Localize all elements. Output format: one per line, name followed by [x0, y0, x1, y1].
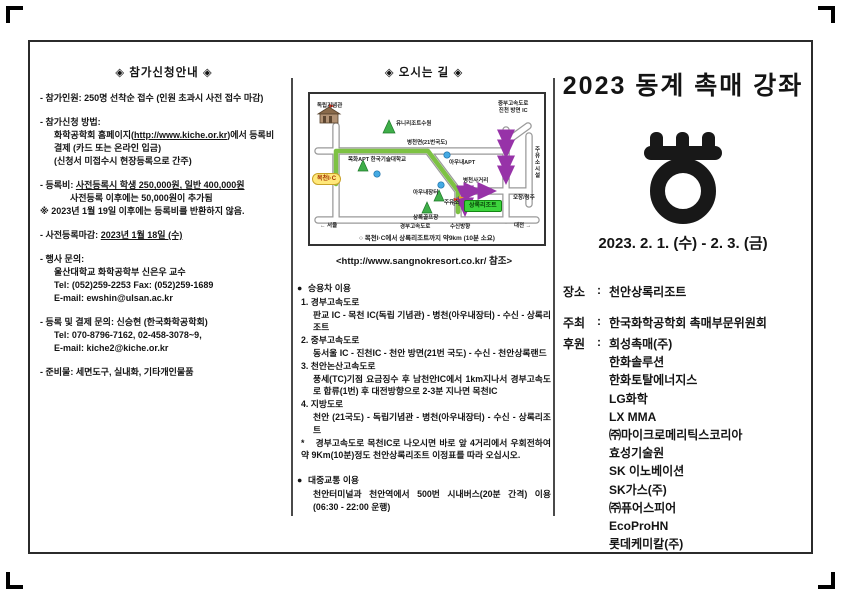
info-line: - 행사 문의:	[40, 253, 288, 266]
info-line: 사전등록 이후에는 50,000원이 추가됨	[70, 192, 288, 205]
text: (신청서 미접수시 현장등록으로 간주)	[54, 156, 192, 166]
info-line: - 준비물: 세면도구, 실내화, 기타개인물품	[40, 366, 288, 379]
bullet-icon: ●	[297, 474, 308, 487]
column-divider-left	[291, 78, 293, 516]
logo-ring	[650, 158, 716, 224]
text: - 참가인원: 250명 선착순 접수 (인원 초과시 사전 접수 마감)	[40, 93, 263, 103]
text: Tel: (052)259-2253 Fax: (052)259-1689	[54, 280, 213, 290]
sangnok-resort-badge: 상록리조트	[464, 200, 502, 212]
text: - 등록비:	[40, 180, 76, 190]
info-paragraph: - 등록 및 결제 문의: 신승현 (한국화학공학회)Tel: 070-8796…	[40, 316, 288, 355]
sponsor-item: ㈜퓨어스피어	[609, 499, 742, 517]
corner-mark-top-left	[6, 6, 23, 23]
sponsor-list: 희성촉매(주)한화솔루션한화토탈에너지스LG화학LX MMA㈜마이크로메리틱스코…	[609, 335, 742, 553]
map-place-label: 주유소시설	[533, 146, 540, 179]
transit-directions: ●대중교통 이용 천안터미널과 천안역에서 500번 시내버스(20분 간격) …	[297, 474, 551, 513]
resort-website-link: <http://www.sangnokresort.co.kr/ 참조>	[297, 253, 551, 267]
sponsor-item: SK 이노베이션	[609, 462, 742, 480]
corner-mark-bottom-left	[6, 572, 23, 589]
colon: :	[597, 283, 609, 300]
sponsor-item: LG화학	[609, 390, 742, 408]
map-place-label: 병천면(21번국도)	[407, 140, 447, 147]
text: ※ 2023년 1월 19일 이후에는 등록비를 반환하지 않음.	[40, 206, 245, 216]
text: - 행사 문의:	[40, 254, 84, 264]
route-list: 1. 경부고속도로판교 IC - 목천 IC(독립 기념관) - 병천(아우내장…	[297, 296, 551, 437]
route-name: 3. 천안논산고속도로	[301, 360, 551, 373]
route-item: 2. 중부고속도로동서울 IC - 진천IC - 천안 방면(21번 국도) -…	[297, 334, 551, 360]
text: 화학공학회 홈페이지(	[54, 130, 134, 140]
info-line: 울산대학교 화학공학부 신은우 교수	[54, 266, 288, 279]
text: - 사전등록마감:	[40, 230, 101, 240]
emphasized-text: 사전등록시 학생 250,000원, 일반 400,000원	[76, 180, 245, 190]
route-name: 2. 중부고속도로	[301, 334, 551, 347]
route-description: 천안 (21국도) - 독립기념관 - 병천(아우내장터) - 수신 - 상록리…	[313, 411, 551, 437]
sponsor-item: 롯데케미칼(주)	[609, 535, 742, 553]
registration-column: ◈ 참가신청안내 ◈ - 참가인원: 250명 선착순 접수 (인원 초과시 사…	[40, 42, 288, 390]
route-map: 독립기념관유니리조트수원병천면(21번국도)중부고속도로 진천 방면 IC주유소…	[308, 92, 546, 246]
sponsor-label: 후원	[563, 335, 597, 553]
info-line: - 등록비: 사전등록시 학생 250,000원, 일반 400,000원	[40, 179, 288, 192]
transit-heading-label: 대중교통 이용	[308, 475, 359, 485]
map-place-label: 경부고속도로	[400, 224, 430, 231]
info-line: - 참가신청 방법:	[40, 116, 288, 129]
catalysis-society-logo-icon	[644, 132, 722, 224]
sponsor-item: LX MMA	[609, 408, 742, 426]
map-place-label: 유니리조트수원	[396, 121, 431, 128]
emphasized-text: 2023년 1월 18일 (수)	[101, 230, 183, 240]
info-paragraph: - 사전등록마감: 2023년 1월 18일 (수)	[40, 229, 288, 242]
asterisk-mark: *	[301, 438, 304, 448]
map-place-label: 수신방향	[450, 224, 470, 231]
directions-column: ◈ 오시는 길 ◈	[297, 42, 551, 514]
map-caption: ○ 목천I·C에서 상록리조트까지 약9km (10분 소요)	[310, 232, 544, 242]
corner-mark-top-right	[818, 6, 835, 23]
exit-note: * 경부고속도로 목천IC로 나오시면 바로 앞 4거리에서 우회전하여 약 9…	[301, 437, 551, 463]
directions-title: ◈ 오시는 길 ◈	[297, 64, 551, 80]
map-place-label: 주유소	[444, 200, 459, 207]
sponsor-item: 효성기술원	[609, 444, 742, 462]
info-line: (신청서 미접수시 현장등록으로 간주)	[54, 155, 288, 168]
text: Tel: 070-8796-7162, 02-458-3078~9,	[54, 330, 202, 340]
text: 사전등록 이후에는 50,000원이 추가됨	[70, 193, 213, 203]
map-place-label: 병천사거리	[463, 178, 488, 185]
info-line: - 사전등록마감: 2023년 1월 18일 (수)	[40, 229, 288, 242]
corner-mark-bottom-right	[818, 572, 835, 589]
colon: :	[597, 335, 609, 553]
transit-heading: ●대중교통 이용	[297, 474, 551, 487]
registration-paragraphs: - 참가인원: 250명 선착순 접수 (인원 초과시 사전 접수 마감)- 참…	[40, 92, 288, 379]
info-paragraph: - 준비물: 세면도구, 실내화, 기타개인물품	[40, 366, 288, 379]
flyer-sheet: ◈ 참가신청안내 ◈ - 참가인원: 250명 선착순 접수 (인원 초과시 사…	[28, 40, 813, 554]
exit-note-text: 경부고속도로 목천IC로 나오시면 바로 앞 4거리에서 우회전하여 약 9Km…	[301, 438, 551, 461]
column-divider-right	[553, 78, 555, 516]
map-place-label: 아우내APT	[449, 160, 475, 167]
text: E-mail: kiche2@kiche.or.kr	[54, 343, 168, 353]
text: - 등록 및 결제 문의: 신승현 (한국화학공학회)	[40, 317, 208, 327]
text: 결제 (카드 또는 온라인 입금)	[54, 143, 161, 153]
colon: :	[597, 314, 609, 331]
host-value: 한국화학공학회 촉매부문위원회	[609, 314, 767, 331]
sponsor-item: EcoProHN	[609, 517, 742, 535]
event-title: 2023 동계 촉매 강좌	[557, 66, 809, 102]
info-line: E-mail: ewshin@ulsan.ac.kr	[54, 292, 288, 305]
map-place-label: 아우내장터	[413, 190, 438, 197]
event-column: 2023 동계 촉매 강좌 2023. 2. 1. (수) - 2. 3. (금…	[557, 42, 809, 553]
map-place-label: 오창/청주	[513, 195, 535, 202]
car-directions: ●승용차 이용 1. 경부고속도로판교 IC - 목천 IC(독립 기념관) -…	[297, 282, 551, 462]
sponsor-item: 희성촉매(주)	[609, 335, 742, 353]
map-place-label: 독립기념관	[317, 103, 342, 110]
info-paragraph: - 등록비: 사전등록시 학생 250,000원, 일반 400,000원사전등…	[40, 179, 288, 218]
registration-title: ◈ 참가신청안내 ◈	[40, 64, 288, 80]
map-place-label: 상록골프장	[413, 215, 438, 222]
route-item: 3. 천안논산고속도로풍세(TC)기점 요금징수 후 남천안IC에서 1km지나…	[297, 360, 551, 398]
car-heading-label: 승용차 이용	[308, 283, 351, 293]
host-label: 주최	[563, 314, 597, 331]
sponsor-item: SK가스(주)	[609, 481, 742, 499]
info-line: - 참가인원: 250명 선착순 접수 (인원 초과시 사전 접수 마감)	[40, 92, 288, 105]
tree-icons	[358, 120, 444, 213]
map-place-label: 중부고속도로 진천 방면 IC	[498, 101, 528, 114]
info-paragraph: - 행사 문의:울산대학교 화학공학부 신은우 교수Tel: (052)259-…	[40, 253, 288, 305]
info-paragraph: - 참가신청 방법:화학공학회 홈페이지(http://www.kiche.or…	[40, 116, 288, 168]
emphasized-text: http://www.kiche.or.kr	[134, 130, 227, 140]
text: )에서 등록비	[227, 130, 274, 140]
info-line: ※ 2023년 1월 19일 이후에는 등록비를 반환하지 않음.	[40, 205, 288, 218]
route-description: 동서울 IC - 진천IC - 천안 방면(21번 국도) - 수신 - 천안상…	[313, 347, 551, 360]
info-line: Tel: (052)259-2253 Fax: (052)259-1689	[54, 279, 288, 292]
sponsor-item: 한화토탈에너지스	[609, 371, 742, 389]
map-place-label: ← 서울	[320, 223, 337, 230]
bullet-icon: ●	[297, 282, 308, 295]
text: 울산대학교 화학공학부 신은우 교수	[54, 267, 186, 277]
sponsor-row: 후원 : 희성촉매(주)한화솔루션한화토탈에너지스LG화학LX MMA㈜마이크로…	[563, 335, 809, 553]
map-place-label: 대전 →	[514, 223, 531, 230]
text: - 준비물: 세면도구, 실내화, 기타개인물품	[40, 367, 193, 377]
info-paragraph: - 참가인원: 250명 선착순 접수 (인원 초과시 사전 접수 마감)	[40, 92, 288, 105]
info-line: E-mail: kiche2@kiche.or.kr	[54, 342, 288, 355]
sponsor-item: 한화솔루션	[609, 353, 742, 371]
route-description: 판교 IC - 목천 IC(독립 기념관) - 병천(아우내장터) - 수신 -…	[313, 309, 551, 335]
info-line: 화학공학회 홈페이지(http://www.kiche.or.kr)에서 등록비	[54, 129, 288, 142]
car-directions-heading: ●승용차 이용	[297, 282, 551, 295]
sponsor-item: ㈜마이크로메리틱스코리아	[609, 426, 742, 444]
venue-value: 천안상록리조트	[609, 283, 686, 300]
route-name: 1. 경부고속도로	[301, 296, 551, 309]
transit-body: 천안터미널과 천안역에서 500번 시내버스(20분 간격) 이용 (06:30…	[313, 488, 551, 514]
text: E-mail: ewshin@ulsan.ac.kr	[54, 293, 173, 303]
mokcheon-ic-badge: 목천I·C	[312, 173, 341, 185]
route-item: 4. 지방도로천안 (21국도) - 독립기념관 - 병천(아우내장터) - 수…	[297, 398, 551, 436]
venue-row: 장소 : 천안상록리조트	[563, 283, 809, 300]
info-line: 결제 (카드 또는 온라인 입금)	[54, 142, 288, 155]
host-row: 주최 : 한국화학공학회 촉매부문위원회	[563, 314, 809, 331]
route-name: 4. 지방도로	[301, 398, 551, 411]
map-place-label: 목화APT 한국기술대학교	[348, 157, 406, 164]
route-description: 풍세(TC)기점 요금징수 후 남천안IC에서 1km지나서 경부고속도로 합류…	[313, 373, 551, 399]
event-info: 장소 : 천안상록리조트 주최 : 한국화학공학회 촉매부문위원회 후원 : 희…	[563, 283, 809, 553]
route-map-graphic	[310, 94, 544, 244]
info-line: - 등록 및 결제 문의: 신승현 (한국화학공학회)	[40, 316, 288, 329]
text: - 참가신청 방법:	[40, 117, 101, 127]
info-line: Tel: 070-8796-7162, 02-458-3078~9,	[54, 329, 288, 342]
route-item: 1. 경부고속도로판교 IC - 목천 IC(독립 기념관) - 병천(아우내장…	[297, 296, 551, 334]
event-date: 2023. 2. 1. (수) - 2. 3. (금)	[557, 232, 809, 253]
venue-label: 장소	[563, 283, 597, 300]
